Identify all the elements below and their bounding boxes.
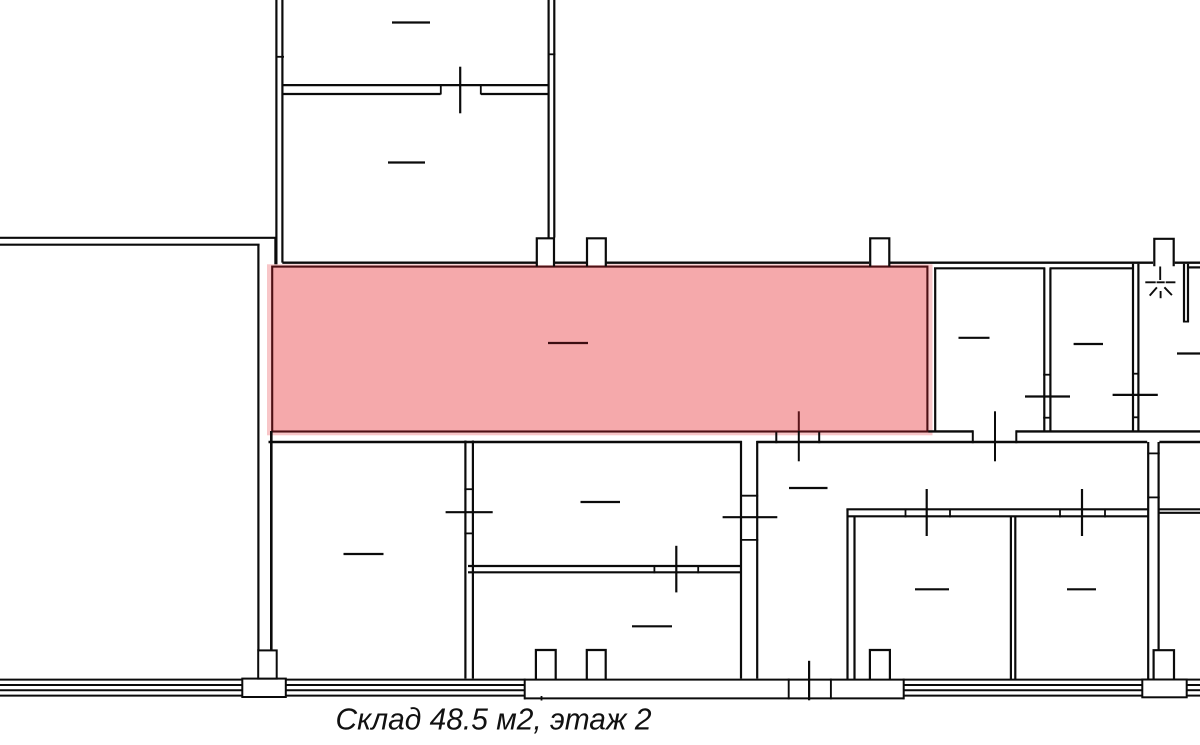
svg-text:Склад 48.5 м2, этаж 2: Склад 48.5 м2, этаж 2 [336, 702, 652, 737]
